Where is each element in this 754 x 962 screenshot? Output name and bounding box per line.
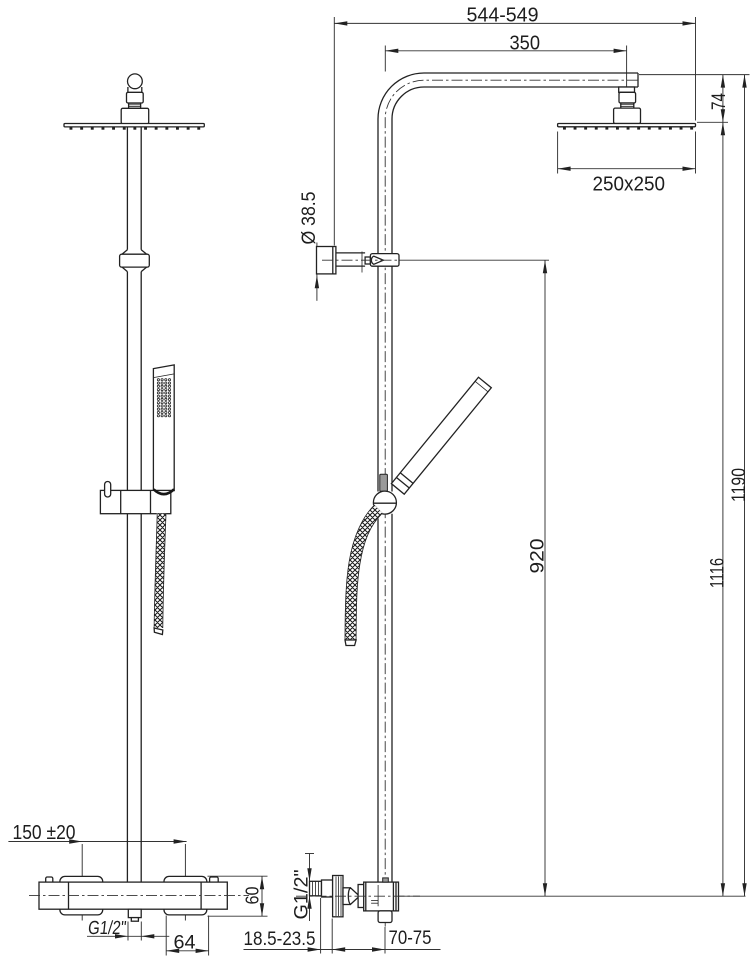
svg-text:1116: 1116: [708, 558, 729, 588]
svg-text:18.5-23.5: 18.5-23.5: [244, 929, 316, 950]
svg-text:70-75: 70-75: [389, 928, 432, 949]
svg-text:250x250: 250x250: [593, 174, 666, 196]
svg-text:350: 350: [510, 33, 541, 55]
svg-text:1190: 1190: [729, 468, 750, 502]
svg-text:544-549: 544-549: [467, 5, 539, 27]
svg-text:920: 920: [528, 539, 549, 574]
svg-text:64: 64: [174, 933, 196, 954]
svg-text:G1/2": G1/2": [87, 918, 127, 939]
svg-text:74: 74: [709, 93, 730, 110]
svg-text:150 ±20: 150 ±20: [13, 822, 76, 844]
svg-text:Ø 38.5: Ø 38.5: [299, 192, 320, 245]
